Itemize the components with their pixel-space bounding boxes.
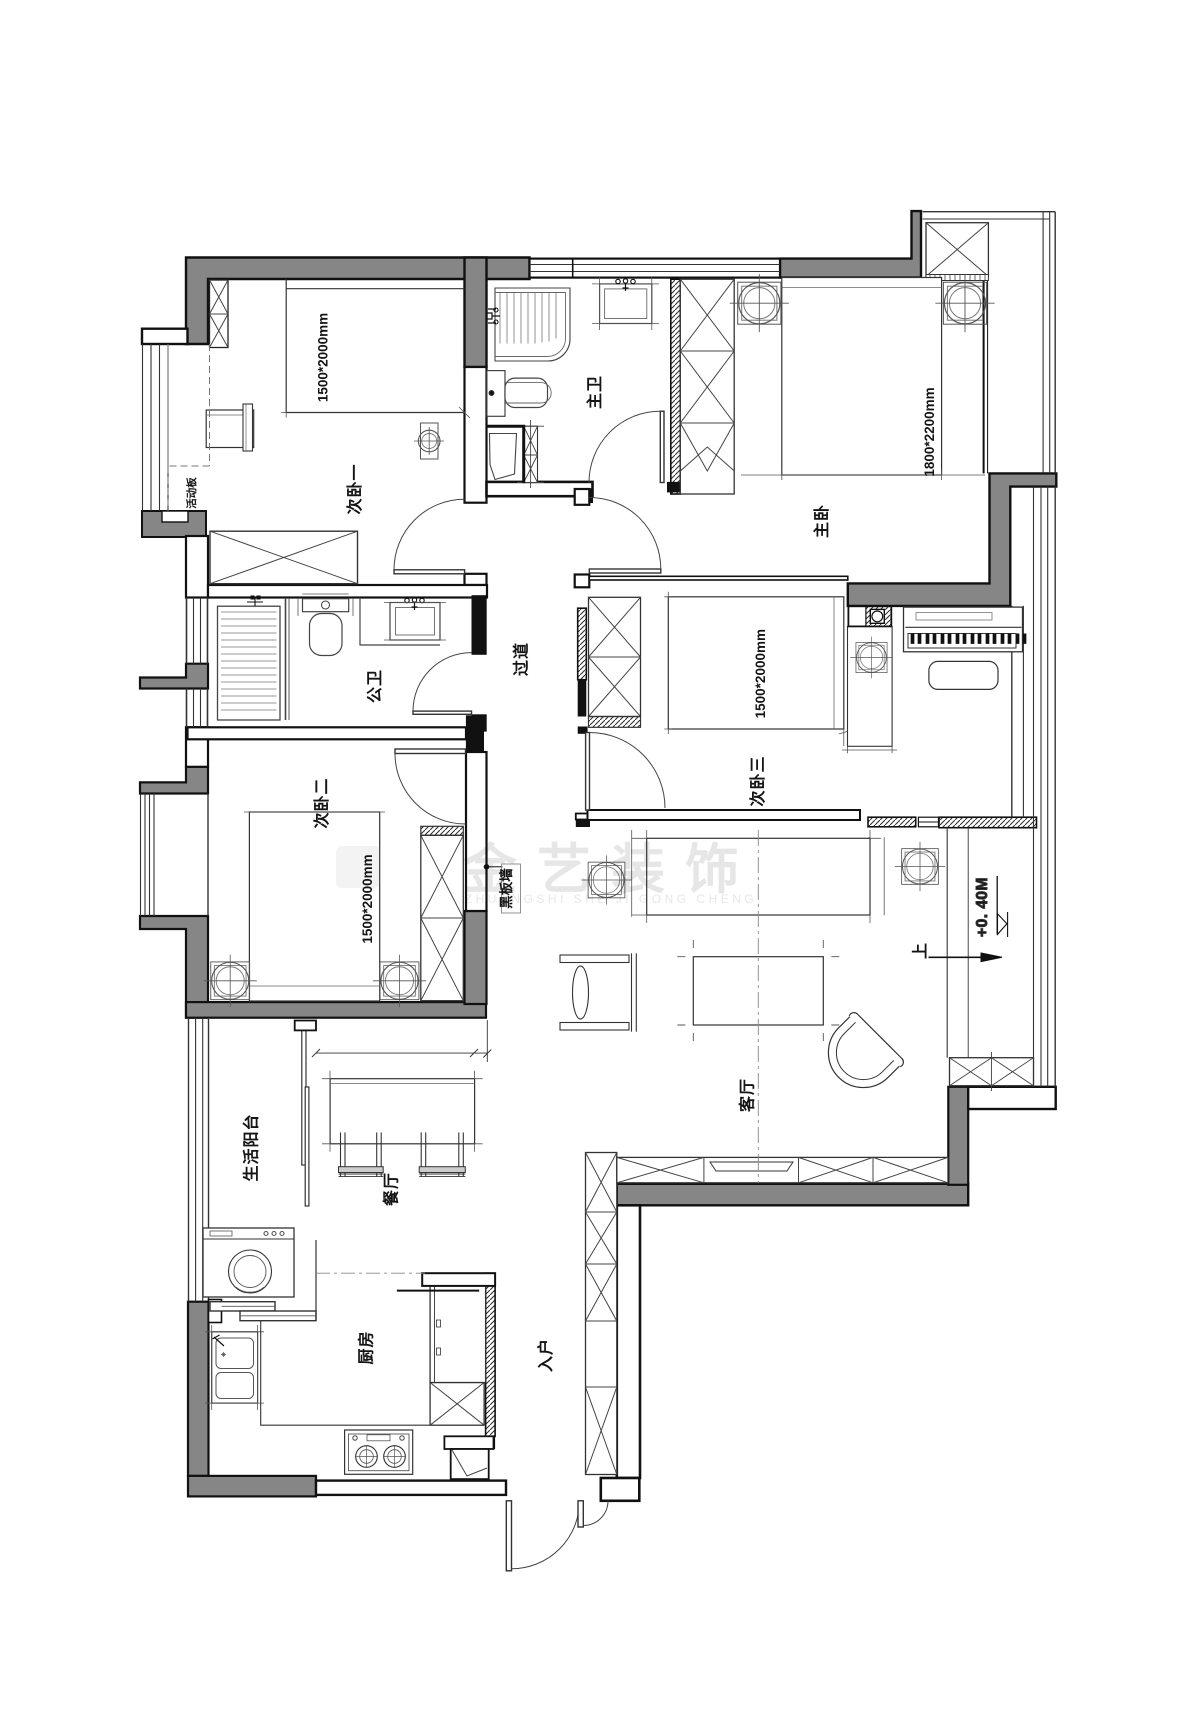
- svg-text:次卧三: 次卧三: [748, 755, 767, 806]
- svg-text:客厅: 客厅: [738, 1078, 757, 1112]
- svg-text:+0. 40M: +0. 40M: [974, 877, 991, 937]
- svg-text:黑板墙: 黑板墙: [498, 868, 514, 909]
- svg-text:入户: 入户: [536, 1338, 555, 1372]
- svg-text:上: 上: [912, 943, 930, 959]
- svg-text:次卧二: 次卧二: [312, 777, 331, 828]
- svg-text:过道: 过道: [512, 642, 531, 676]
- svg-text:公卫: 公卫: [366, 669, 384, 703]
- svg-text:厨房: 厨房: [357, 1330, 376, 1364]
- svg-text:1500*2000mm: 1500*2000mm: [753, 629, 768, 718]
- svg-text:1500*2000mm: 1500*2000mm: [316, 313, 331, 402]
- svg-text:活动板: 活动板: [185, 477, 198, 509]
- svg-text:餐厅: 餐厅: [382, 1172, 401, 1207]
- svg-text:生活阳台: 生活阳台: [242, 1113, 261, 1181]
- svg-text:1800*2200mm: 1800*2200mm: [922, 387, 937, 476]
- svg-text:主卫: 主卫: [585, 375, 604, 409]
- svg-text:1500*2000mm: 1500*2000mm: [360, 854, 375, 943]
- svg-text:次卧一: 次卧一: [345, 463, 364, 514]
- svg-text:主卧: 主卧: [812, 504, 831, 538]
